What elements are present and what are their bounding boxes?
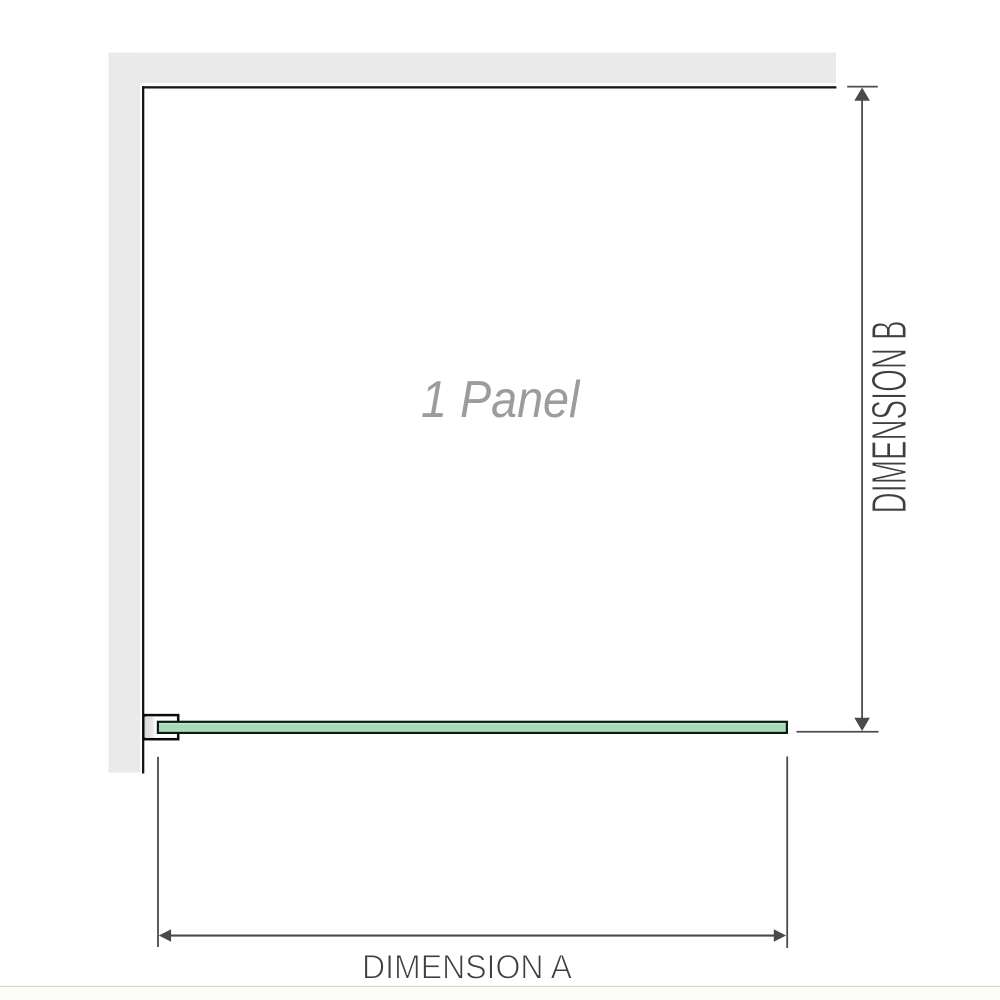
svg-text:DIMENSION A: DIMENSION A (362, 948, 572, 986)
svg-text:1 Panel: 1 Panel (421, 371, 581, 429)
svg-text:DIMENSION B: DIMENSION B (862, 321, 917, 514)
